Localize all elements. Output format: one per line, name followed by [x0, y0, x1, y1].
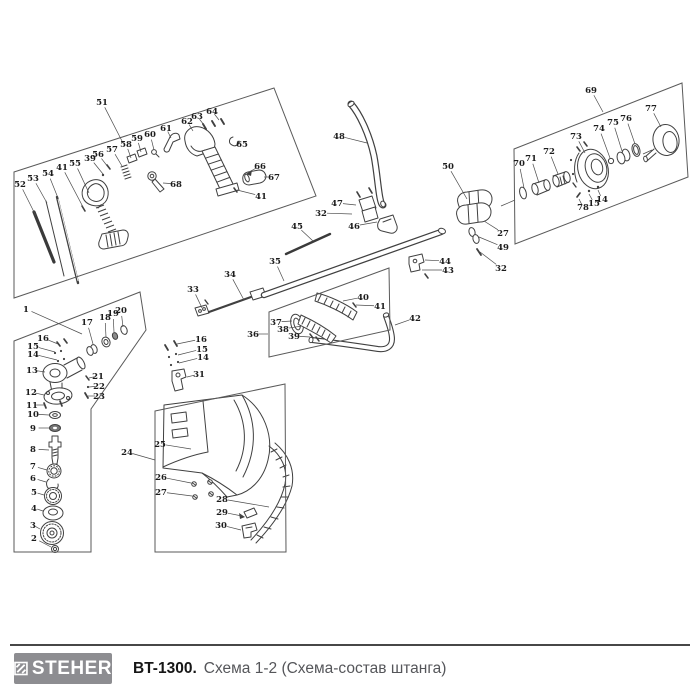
part-label-16: 16 — [195, 335, 207, 345]
part-56-screw — [102, 165, 110, 176]
part-label-70: 70 — [513, 159, 525, 169]
diagram-subtitle: Схема 1-2 (Схема-состав штанга) — [204, 660, 447, 678]
leader-line-26 — [167, 478, 191, 483]
part-label-30: 30 — [215, 521, 227, 531]
leader-line-71 — [533, 164, 539, 183]
part-label-17: 17 — [81, 318, 93, 328]
part-label-31: 31 — [193, 370, 205, 380]
part-3-gear-pulley — [41, 522, 64, 545]
part-label-42: 42 — [409, 314, 421, 324]
part-74-nut — [608, 158, 613, 163]
part-label-41: 41 — [374, 302, 386, 312]
leader-line-70 — [520, 169, 524, 188]
part-label-56: 56 — [92, 150, 104, 160]
leader-line-27 — [167, 493, 192, 496]
leader-line-6 — [38, 479, 46, 482]
part-label-41: 41 — [56, 163, 68, 173]
part-label-52: 52 — [14, 180, 26, 190]
part-label-36: 36 — [247, 330, 259, 340]
part-51-handle-housing — [185, 127, 239, 196]
part-70-ring — [518, 186, 527, 199]
part-label-40: 40 — [357, 293, 369, 303]
leader-line-57 — [115, 154, 122, 166]
leader-line-14 — [39, 355, 57, 360]
leader-line-44 — [425, 260, 439, 261]
part-label-4: 4 — [31, 504, 37, 514]
part-label-23: 23 — [93, 392, 105, 402]
part-55-loop-handle — [82, 180, 128, 249]
part-label-1: 1 — [23, 305, 29, 315]
part-68-lock-lever — [148, 172, 164, 192]
diagram-caption: BT-1300. Схема 1-2 (Схема-состав штанга) — [133, 644, 446, 693]
leader-line-35 — [277, 266, 284, 281]
part-73-bell-housing — [570, 142, 613, 192]
part-label-20: 20 — [115, 306, 127, 316]
part-label-27: 27 — [155, 488, 167, 498]
part-40-grip-half-upper — [315, 293, 357, 320]
leader-line-75 — [615, 128, 622, 151]
part-label-54: 54 — [42, 169, 54, 179]
part-label-22: 22 — [93, 382, 105, 392]
part-label-41: 41 — [255, 192, 267, 202]
leader-line-40 — [343, 298, 357, 301]
part-76-ring — [631, 143, 642, 157]
part-label-3: 3 — [30, 521, 36, 531]
part-label-35: 35 — [269, 257, 281, 267]
footer-bar: STEHER BT-1300. Схема 1-2 (Схема-состав … — [0, 644, 700, 700]
leader-line-17 — [89, 328, 93, 344]
part-label-59: 59 — [131, 134, 143, 144]
part-label-9: 9 — [30, 424, 36, 434]
leader-line-39 — [94, 163, 103, 174]
part-label-10: 10 — [27, 410, 39, 420]
leader-line-47 — [343, 204, 356, 205]
part-39-screw-dot — [102, 174, 104, 176]
part-2-nut — [52, 546, 59, 553]
leader-line-76 — [628, 124, 635, 144]
leader-line-24 — [133, 454, 155, 460]
leader-line-19 — [113, 319, 114, 332]
part-12-flange — [43, 387, 73, 406]
part-label-5: 5 — [31, 488, 37, 498]
exploded-parts-diagram: 5152535441553956575859606162636465666741… — [0, 0, 700, 645]
part-46-clamp-bracket — [378, 215, 398, 233]
part-label-13: 13 — [26, 366, 38, 376]
grip-assembly-box — [269, 268, 390, 357]
part-label-14: 14 — [596, 195, 608, 205]
leader-line-77 — [654, 113, 661, 127]
part-label-66: 66 — [254, 162, 266, 172]
part-label-68: 68 — [170, 180, 182, 190]
part-label-63: 63 — [191, 112, 203, 122]
part-67-sleeve — [243, 170, 266, 185]
part-label-72: 72 — [543, 147, 555, 157]
part-label-32: 32 — [495, 264, 507, 274]
part-44-bracket — [409, 254, 428, 278]
leader-line-48 — [345, 137, 367, 143]
brand-name: STEHER — [32, 658, 112, 680]
part-label-60: 60 — [144, 130, 156, 140]
leader-line-39 — [300, 336, 310, 337]
part-label-28: 28 — [216, 495, 228, 505]
part-label-51: 51 — [96, 98, 108, 108]
leader-line-41 — [356, 305, 374, 306]
part-14-15-16-screws-mid — [165, 341, 179, 366]
part-8-spindle-shaft — [49, 436, 61, 464]
leader-line-49 — [479, 237, 497, 245]
leader-line-52 — [23, 189, 36, 216]
part-label-61: 61 — [160, 124, 172, 134]
part-label-57: 57 — [106, 145, 118, 155]
part-29-blade — [244, 508, 257, 518]
part-9-seal — [50, 425, 61, 432]
part-label-34: 34 — [224, 270, 236, 280]
part-54-drive-rod — [57, 197, 78, 283]
part-47-clamp-plates — [357, 188, 378, 222]
leader-line-30 — [227, 526, 241, 530]
leader-line-50 — [451, 171, 467, 199]
part-62-63-64-screws — [203, 119, 224, 129]
leader-line-74 — [601, 134, 610, 158]
part-61-throttle-trigger — [164, 133, 180, 152]
part-77-knob — [643, 123, 681, 162]
leader-line-54 — [50, 179, 58, 198]
leader-line-18 — [105, 323, 106, 337]
part-21-22-23-screws — [85, 376, 89, 398]
leader-line-16 — [177, 340, 195, 344]
leader-line-42 — [395, 320, 409, 325]
part-label-8: 8 — [30, 445, 36, 455]
part-label-32: 32 — [315, 209, 327, 219]
leader-line-32 — [480, 252, 496, 264]
leader-line-8 — [39, 449, 49, 450]
leader-line-51 — [105, 107, 123, 143]
part-label-33: 33 — [187, 285, 199, 295]
part-label-25: 25 — [154, 440, 166, 450]
part-43-screw — [425, 274, 428, 278]
part-label-71: 71 — [525, 154, 537, 164]
part-4-cup-washer — [43, 506, 63, 520]
part-label-53: 53 — [27, 174, 39, 184]
part-25-guard-shield — [163, 395, 270, 497]
part-71-bushing — [531, 179, 551, 195]
part-label-2: 2 — [31, 534, 37, 544]
part-5-gear — [45, 488, 62, 505]
leader-line-72 — [551, 157, 558, 174]
part-label-77: 77 — [645, 104, 657, 114]
leader-line-3 — [35, 526, 40, 529]
part-label-75: 75 — [607, 118, 619, 128]
part-50-shaft-clamp — [457, 190, 492, 224]
leader-line-60 — [151, 140, 154, 150]
leader-line-32 — [327, 213, 352, 214]
steher-logo: STEHER — [14, 653, 112, 684]
leader-line-34 — [233, 279, 244, 300]
part-60-ring — [152, 150, 159, 157]
part-label-67: 67 — [268, 173, 280, 183]
leader-line-41 — [65, 172, 83, 207]
leader-line-53 — [36, 183, 47, 203]
part-label-24: 24 — [121, 448, 133, 458]
part-75-cup-washer — [616, 148, 631, 164]
part-label-50: 50 — [442, 162, 454, 172]
part-label-7: 7 — [30, 462, 36, 472]
part-31-bracket — [172, 369, 186, 391]
leader-line-5 — [38, 493, 45, 495]
leader-line-45 — [301, 230, 313, 241]
part-label-29: 29 — [216, 508, 228, 518]
part-label-65: 65 — [236, 140, 248, 150]
part-label-46: 46 — [348, 222, 360, 232]
part-label-14: 14 — [27, 350, 39, 360]
part-label-69: 69 — [585, 86, 597, 96]
part-57-spring — [121, 165, 131, 179]
part-72-ribbed-coupler — [552, 171, 571, 187]
part-59-switch-block — [137, 148, 147, 157]
part-label-43: 43 — [442, 266, 454, 276]
leader-line-15 — [178, 350, 196, 355]
leader-line-27 — [484, 221, 498, 230]
part-49-grommet — [468, 227, 480, 244]
part-label-12: 12 — [25, 388, 37, 398]
part-label-55: 55 — [69, 159, 81, 169]
leader-lines-layer — [23, 95, 661, 547]
leader-line-46 — [360, 222, 377, 225]
part-26-27-screws — [192, 480, 214, 500]
part-7-bearing — [47, 464, 61, 478]
part-label-76: 76 — [620, 114, 632, 124]
part-10-washer — [50, 412, 61, 419]
part-45-flex-shaft — [286, 234, 330, 254]
leader-line-28 — [228, 500, 269, 507]
leader-line-41 — [237, 190, 255, 195]
part-label-49: 49 — [497, 243, 509, 253]
leader-line-14 — [179, 358, 197, 363]
part-label-27: 27 — [497, 229, 509, 239]
part-label-21: 21 — [92, 372, 104, 382]
leader-line-4 — [37, 509, 43, 511]
model-number: BT-1300. — [133, 660, 197, 678]
part-label-6: 6 — [30, 474, 36, 484]
part-52-cable-rod — [34, 212, 54, 262]
leader-line-33 — [196, 294, 202, 308]
parts-diagram-page: 5152535441553956575859606162636465666741… — [0, 0, 700, 700]
part-41-screw-c — [353, 303, 356, 307]
leader-line-15 — [39, 348, 55, 352]
part-labels-layer: 5152535441553956575859606162636465666741… — [14, 86, 657, 544]
part-label-14: 14 — [197, 353, 209, 363]
steher-logo-icon — [14, 660, 28, 677]
part-label-39: 39 — [288, 332, 300, 342]
part-label-73: 73 — [570, 132, 582, 142]
part-label-45: 45 — [291, 222, 303, 232]
part-label-48: 48 — [333, 132, 345, 142]
leader-line-1 — [31, 311, 82, 334]
part-48-handlebar-tube — [347, 100, 386, 207]
part-label-74: 74 — [593, 124, 605, 134]
part-41-screw — [82, 206, 85, 211]
part-58-switch-block — [127, 154, 137, 163]
part-14-15-16-screws — [54, 339, 67, 362]
part-label-47: 47 — [331, 199, 343, 209]
part-label-64: 64 — [206, 107, 218, 117]
leader-line-7 — [38, 467, 47, 470]
leader-line-69 — [594, 95, 603, 112]
leader-line-10 — [39, 414, 49, 415]
part-label-26: 26 — [155, 473, 167, 483]
